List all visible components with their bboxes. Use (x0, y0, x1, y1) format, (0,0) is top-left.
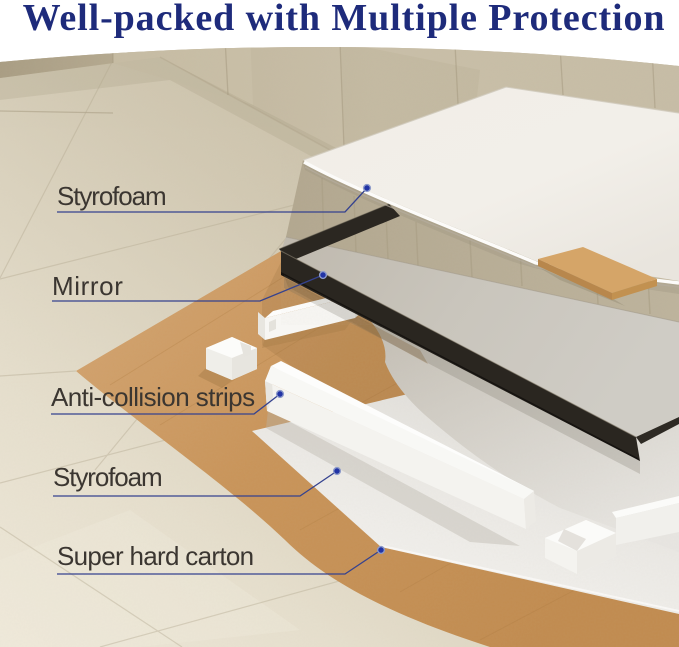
svg-text:Mirror: Mirror (52, 271, 123, 301)
svg-text:Well-packed with Multiple Prot: Well-packed with Multiple Protection (23, 0, 666, 39)
svg-text:Styrofoam: Styrofoam (57, 181, 166, 211)
svg-text:Anti-collision strips: Anti-collision strips (51, 382, 255, 412)
svg-text:Styrofoam: Styrofoam (53, 462, 162, 492)
svg-text:Super hard carton: Super hard carton (57, 541, 253, 571)
